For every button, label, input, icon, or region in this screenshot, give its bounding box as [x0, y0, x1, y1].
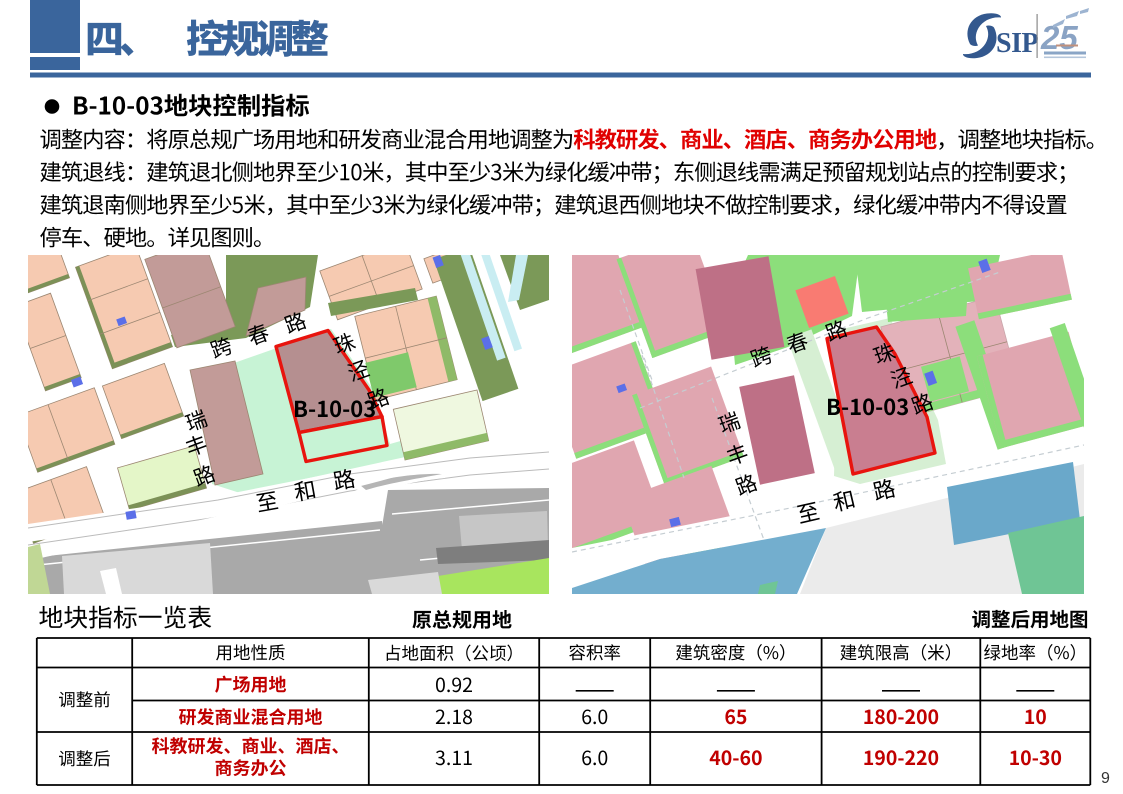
svg-text:9: 9 [1101, 770, 1110, 787]
svg-text:SIP: SIP [996, 28, 1038, 59]
